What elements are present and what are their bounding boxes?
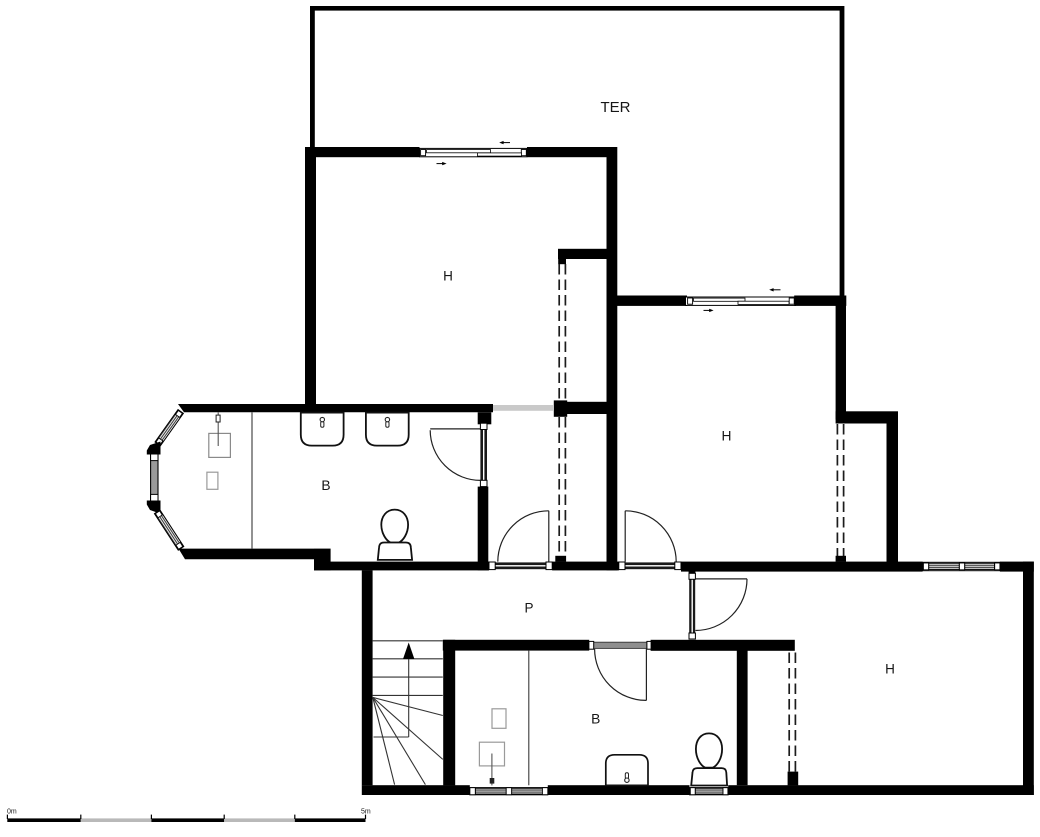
svg-text:H: H xyxy=(722,428,732,443)
svg-text:B: B xyxy=(321,478,330,493)
svg-text:TER: TER xyxy=(601,99,631,116)
svg-text:0m: 0m xyxy=(7,809,17,816)
svg-text:H: H xyxy=(885,662,895,677)
svg-text:5m: 5m xyxy=(361,809,371,816)
svg-text:B: B xyxy=(591,712,600,727)
svg-text:H: H xyxy=(443,269,453,284)
svg-text:P: P xyxy=(524,600,533,615)
